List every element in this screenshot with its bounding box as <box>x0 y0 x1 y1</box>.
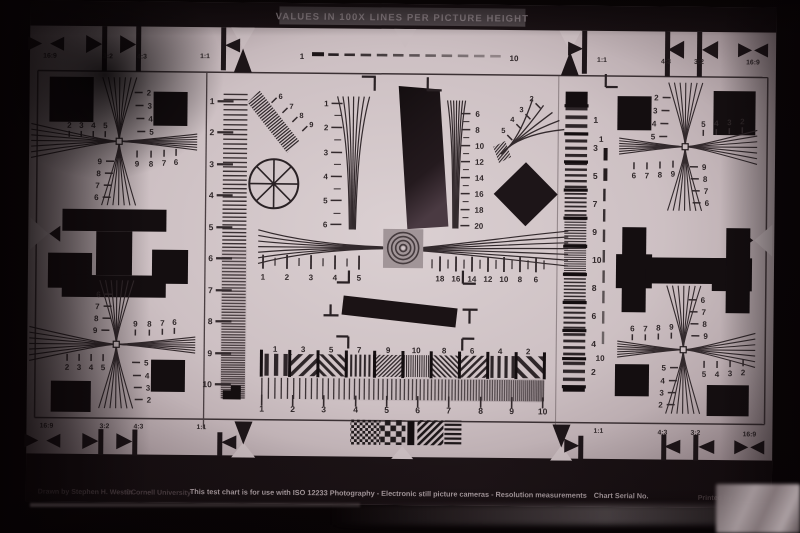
value-label: 5 <box>662 364 667 373</box>
value-label: 3 <box>77 363 82 372</box>
value-label: 10 <box>202 379 212 389</box>
value-label: 4:3 <box>133 423 143 430</box>
value-label: 4 <box>333 273 338 282</box>
value-label: 1 <box>300 52 305 61</box>
value-label: 9 <box>702 163 707 172</box>
value-label: 2 <box>740 117 745 126</box>
value-label: 9 <box>669 323 674 332</box>
value-label: 6 <box>323 220 328 229</box>
value-label: 7 <box>208 285 213 295</box>
value-label: 2 <box>285 273 290 282</box>
chart-mark <box>565 134 587 162</box>
chart-mark <box>563 245 587 248</box>
value-label: 4:3 <box>137 53 147 60</box>
black-square <box>49 77 93 122</box>
value-label: 2 <box>67 121 72 130</box>
value-label: 4 <box>652 119 657 128</box>
value-label: 4 <box>660 377 665 386</box>
value-label: 18 <box>474 206 484 215</box>
value-label: 2 <box>591 367 596 377</box>
value-label: 4 <box>323 172 328 181</box>
value-label: 2 <box>658 400 663 409</box>
chart-mark <box>444 420 461 445</box>
chart-mark <box>328 53 339 56</box>
chart-mark <box>345 350 348 377</box>
chart-mark <box>407 421 414 445</box>
value-label: 2 <box>147 396 152 405</box>
value-label: 6 <box>208 253 213 263</box>
chart-mark <box>377 54 388 57</box>
value-label: 7 <box>645 171 650 180</box>
chart-mark <box>564 132 588 135</box>
chart-mark <box>217 432 222 456</box>
value-label: 8 <box>94 314 99 323</box>
chart-mark <box>563 302 585 330</box>
value-label: 8 <box>702 320 707 329</box>
value-label: 9 <box>133 319 138 328</box>
chart-mark <box>458 352 461 379</box>
chart-mark <box>563 216 587 219</box>
value-label: 1 <box>210 96 215 106</box>
test-chart: VALUES IN 100X LINES PER PICTURE HEIGHT … <box>0 0 800 533</box>
value-label: 9 <box>93 326 98 335</box>
photo-of-iso12233-test-chart: VALUES IN 100X LINES PER PICTURE HEIGHT … <box>0 0 800 533</box>
chart-mark <box>132 429 137 455</box>
chart-mark <box>402 355 431 377</box>
value-label: 3 <box>727 118 732 127</box>
value-label: 3 <box>301 345 306 354</box>
copyright-text: ©Cornell University <box>126 488 191 497</box>
chart-mark <box>459 356 488 378</box>
value-label: 3 <box>79 121 84 130</box>
value-label: 10 <box>475 142 485 151</box>
value-label: 2 <box>526 347 531 356</box>
chart-mark <box>697 32 702 77</box>
black-square <box>153 92 187 126</box>
cross-center-square <box>680 347 686 353</box>
value-label: 9 <box>671 170 676 179</box>
value-label: 9 <box>309 120 313 129</box>
chart-mark <box>220 248 247 398</box>
value-label: 7 <box>643 324 648 333</box>
value-label: 4 <box>209 190 214 200</box>
value-label: 3:2 <box>690 430 700 437</box>
value-label: 10 <box>412 346 422 355</box>
chart-mark <box>563 273 587 276</box>
chart-mark <box>564 246 586 274</box>
chart-mark <box>726 228 751 313</box>
chart-mark <box>564 188 588 191</box>
value-label: 4 <box>715 370 720 379</box>
value-label: 12 <box>475 158 485 167</box>
value-label: 1:1 <box>200 53 210 60</box>
chart-mark <box>665 32 670 77</box>
chart-mark <box>346 354 375 376</box>
chart-mark <box>603 250 606 263</box>
value-label: 5 <box>357 274 362 283</box>
chart-mark <box>563 387 585 392</box>
chart-mark <box>474 55 485 58</box>
chart-mark <box>565 106 587 134</box>
value-label: 1 <box>599 135 604 144</box>
value-label: 2 <box>654 93 659 102</box>
chart-mark <box>318 354 347 376</box>
chart-mark <box>602 270 605 283</box>
value-label: 4 <box>91 121 96 130</box>
chart-mark <box>565 162 587 190</box>
value-label: 8 <box>656 323 661 332</box>
chart-mark <box>401 246 405 250</box>
chart-mark <box>260 350 263 377</box>
value-label: 7 <box>162 159 167 168</box>
chart-mark <box>603 168 607 181</box>
chart-mark <box>262 377 544 403</box>
value-label: 4:3 <box>657 429 667 436</box>
chart-mark <box>604 148 608 161</box>
cross-center-square <box>682 144 688 150</box>
value-label: 9 <box>207 348 212 358</box>
value-label: 2 <box>529 94 533 103</box>
value-label: 8 <box>299 111 303 120</box>
value-label: 3 <box>147 102 152 111</box>
value-label: 7 <box>95 302 100 311</box>
black-square <box>707 385 749 416</box>
chart-mark <box>562 329 586 332</box>
chart-mark <box>563 301 587 304</box>
value-label: 7 <box>593 199 598 209</box>
chart-mark <box>564 274 586 302</box>
chart-mark <box>373 351 376 378</box>
value-label: 3 <box>653 106 658 115</box>
black-square <box>151 360 185 392</box>
value-label: 7 <box>704 187 709 196</box>
value-label: 6 <box>701 296 706 305</box>
value-label: 8 <box>149 160 154 169</box>
value-label: 16:9 <box>743 431 757 438</box>
chart-mark <box>374 355 403 377</box>
value-label: 3 <box>519 105 523 114</box>
value-label: 16:9 <box>40 423 54 430</box>
chart-mark <box>582 31 587 74</box>
value-label: 3 <box>209 159 214 169</box>
value-label: 4 <box>145 372 150 381</box>
value-label: 3 <box>324 148 329 157</box>
chart-mark <box>487 356 516 378</box>
value-label: 4 <box>148 115 153 124</box>
value-label: 5 <box>651 132 656 141</box>
chart-mark <box>417 420 443 445</box>
chart-mark <box>62 209 166 232</box>
value-label: 3:2 <box>694 59 704 66</box>
value-label: 6 <box>470 347 475 356</box>
value-label: 1:1 <box>597 57 607 64</box>
value-label: 7 <box>357 346 362 355</box>
value-label: 3:2 <box>103 53 113 60</box>
value-label: 7 <box>702 308 707 317</box>
value-label: 6 <box>705 199 710 208</box>
value-label: 8 <box>518 275 523 284</box>
value-label: 4 <box>714 119 719 128</box>
value-label: 14 <box>467 275 477 284</box>
value-label: 2 <box>147 89 152 98</box>
value-label: 16 <box>451 274 461 283</box>
chart-mark <box>543 352 546 379</box>
value-label: 1:1 <box>593 428 603 435</box>
chart-mark <box>221 27 226 70</box>
value-label: 6 <box>534 275 539 284</box>
value-label: 2 <box>324 123 329 132</box>
value-label: 4 <box>498 347 503 356</box>
value-label: 5 <box>209 222 214 232</box>
chart-mark <box>96 231 132 275</box>
chart-mark <box>490 55 501 58</box>
right-segmented-strip <box>562 92 589 392</box>
value-label: 5 <box>701 120 706 129</box>
chart-mark <box>564 160 588 163</box>
value-label: 6 <box>591 311 596 321</box>
value-label: 5 <box>501 126 505 135</box>
value-label: 9 <box>135 159 140 168</box>
value-label: 9 <box>703 332 708 341</box>
bottom-bands <box>260 350 546 403</box>
chart-mark <box>646 257 726 284</box>
value-label: 8 <box>147 320 152 329</box>
value-label: 6 <box>174 158 179 167</box>
value-label: 14 <box>475 174 485 183</box>
value-label: 5 <box>593 171 598 181</box>
chart-mark <box>344 53 355 56</box>
value-label: 16:9 <box>746 59 760 66</box>
chart-mark <box>425 54 436 57</box>
chart-mark <box>661 435 666 461</box>
chart-mark <box>442 54 453 57</box>
value-label: 5 <box>101 363 106 372</box>
chart-stage: VALUES IN 100X LINES PER PICTURE HEIGHT … <box>0 0 800 533</box>
value-label: 7 <box>289 102 293 111</box>
value-label: 6 <box>96 290 101 299</box>
value-label: 12 <box>483 275 493 284</box>
value-label: 3 <box>146 384 151 393</box>
value-label: 6 <box>632 171 637 180</box>
chart-mark <box>98 429 103 455</box>
center-target <box>383 229 423 268</box>
black-square <box>713 91 755 135</box>
chart-mark <box>566 92 588 106</box>
chart-mark <box>603 209 606 222</box>
chart-mark <box>486 352 489 379</box>
value-label: 6 <box>630 324 635 333</box>
value-label: 3 <box>593 143 598 153</box>
chart-mark <box>261 354 290 376</box>
value-label: 7 <box>95 181 100 190</box>
value-label: 1 <box>261 273 266 282</box>
value-label: 8 <box>703 175 708 184</box>
value-label: 16 <box>475 190 485 199</box>
chart-mark <box>563 358 585 386</box>
chart-mark <box>562 357 586 360</box>
serial-label: Chart Serial No. <box>594 491 649 501</box>
chart-mark <box>602 311 605 324</box>
chart-mark <box>361 54 372 57</box>
value-label: 5 <box>144 359 149 368</box>
chart-mark <box>136 26 141 71</box>
chart-mark <box>578 436 583 460</box>
chart-mark <box>564 218 586 246</box>
value-label: 10 <box>592 255 602 265</box>
chart-mark <box>350 420 380 445</box>
value-label: 5 <box>103 121 108 130</box>
chart-mark <box>693 435 698 461</box>
value-label: 8 <box>442 346 447 355</box>
value-label: 4:3 <box>661 58 671 65</box>
value-label: 8 <box>658 170 663 179</box>
value-label: 20 <box>474 222 484 231</box>
value-label: 1 <box>324 99 329 108</box>
value-label: 5 <box>329 345 334 354</box>
value-label: 10 <box>596 354 606 363</box>
value-label: 2 <box>65 363 70 372</box>
value-label: 6 <box>278 92 282 101</box>
value-label: 6 <box>475 110 480 119</box>
value-label: 8 <box>96 169 101 178</box>
chart-mark <box>409 54 420 57</box>
value-label: 5 <box>702 370 707 379</box>
chart-mark <box>622 227 647 312</box>
value-label: 3:2 <box>99 423 109 430</box>
value-label: 6 <box>94 193 99 202</box>
chart-mark <box>62 275 166 298</box>
value-label: 8 <box>475 126 480 135</box>
chart-mark <box>380 420 405 445</box>
value-label: 7 <box>160 319 165 328</box>
chart-mark <box>289 354 318 376</box>
value-label: 5 <box>149 128 154 137</box>
chart-mark <box>288 350 291 377</box>
value-label: 5 <box>323 196 328 205</box>
chart-mark <box>603 189 606 202</box>
value-label: 3 <box>728 369 733 378</box>
chart-mark <box>312 52 324 56</box>
value-label: 1 <box>273 345 278 354</box>
chart-bottom-banner <box>26 453 772 508</box>
chart-mark <box>564 190 586 218</box>
printed-by-label: Printed by <box>698 495 732 502</box>
chart-mark <box>602 332 605 345</box>
value-label: 4 <box>89 363 94 372</box>
black-square <box>617 96 651 130</box>
credit-text: Drawn by Stephen H. Westin <box>38 489 133 497</box>
value-label: 6 <box>172 318 177 327</box>
black-square <box>51 381 91 412</box>
value-label: 18 <box>435 274 445 283</box>
chart-mark <box>431 355 460 377</box>
cross-center-square <box>113 341 119 347</box>
cross-center-square <box>116 138 122 144</box>
value-label: 10 <box>499 275 509 284</box>
value-label: 3 <box>659 388 664 397</box>
value-label: 10 <box>510 54 520 63</box>
value-label: 2 <box>741 368 746 377</box>
chart-mark <box>430 351 433 378</box>
value-label: 1:1 <box>196 424 206 431</box>
chart-mark <box>603 230 606 243</box>
black-square <box>615 364 649 396</box>
chart-mark <box>401 351 404 378</box>
chart-mark <box>231 385 241 391</box>
value-label: 9 <box>97 157 102 166</box>
value-label: 9 <box>386 346 391 355</box>
chart-mark <box>514 352 517 379</box>
value-label: 9 <box>592 227 597 237</box>
value-label: 8 <box>592 283 597 293</box>
value-label: 4 <box>591 339 596 349</box>
chart-mark <box>458 55 469 58</box>
value-label: 8 <box>208 316 213 326</box>
chart-mark <box>223 390 241 399</box>
value-label: 3 <box>309 273 314 282</box>
chart-mark <box>393 54 404 57</box>
spoked-circle <box>249 159 298 208</box>
chart-mark <box>102 26 107 71</box>
chart-mark <box>602 291 605 304</box>
chart-mark <box>316 350 319 377</box>
chart-mark <box>563 330 585 358</box>
value-label: 1 <box>593 115 598 125</box>
value-label: 16:9 <box>43 53 57 60</box>
value-label: 2 <box>209 127 214 137</box>
chart-mark <box>516 356 545 378</box>
